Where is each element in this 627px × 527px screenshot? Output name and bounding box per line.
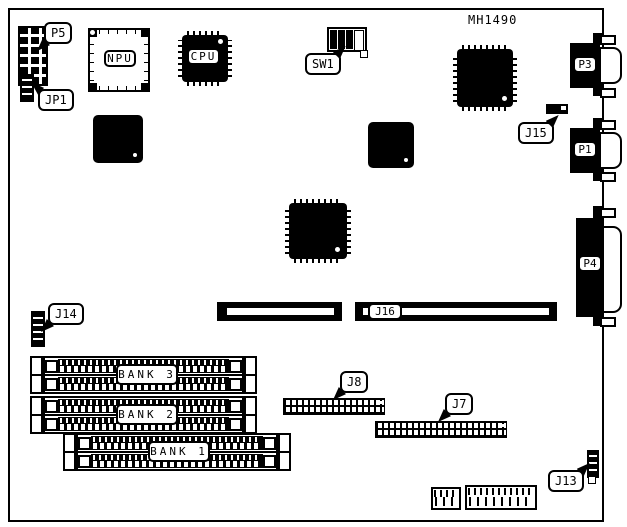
latch-bar bbox=[276, 435, 280, 451]
pin1-dot bbox=[335, 247, 340, 252]
bank1-label: BANK 1 bbox=[148, 441, 210, 462]
callout-jp1: JP1 bbox=[38, 89, 74, 111]
callout-p5-label: P5 bbox=[51, 26, 65, 40]
pin1-dot bbox=[90, 30, 95, 35]
chip bbox=[93, 115, 143, 163]
socket-corner bbox=[141, 83, 149, 91]
latch-bar bbox=[242, 416, 246, 432]
simm-latch bbox=[32, 416, 54, 432]
cpu-chip: CPU bbox=[182, 35, 228, 82]
j8-header bbox=[283, 398, 385, 415]
board-model-label: MH1490 bbox=[468, 13, 517, 27]
dip-position bbox=[354, 30, 364, 51]
pin1-dot bbox=[404, 158, 408, 162]
pin-fringe bbox=[347, 208, 351, 254]
simm-latch bbox=[233, 398, 255, 414]
p4-dsub-shell bbox=[602, 226, 622, 313]
latch-bar bbox=[242, 376, 246, 392]
pin-fringe bbox=[285, 208, 289, 254]
j13-jumper-cell bbox=[588, 476, 596, 484]
callout-sw1: SW1 bbox=[305, 53, 341, 75]
latch-hook bbox=[229, 400, 242, 413]
callout-j14-label: J14 bbox=[55, 307, 77, 321]
latch-hook bbox=[229, 418, 242, 431]
simm-latch bbox=[267, 453, 289, 469]
dip-tab bbox=[360, 50, 368, 58]
simm-latch bbox=[65, 453, 87, 469]
port-screw-tab bbox=[600, 208, 616, 218]
callout-j14: J14 bbox=[48, 303, 84, 325]
connector-pins bbox=[434, 490, 458, 497]
pin1-dot bbox=[502, 96, 507, 101]
p1-port-label: P1 bbox=[573, 141, 597, 158]
j7-header bbox=[375, 421, 507, 438]
pin1-dot bbox=[379, 401, 382, 404]
latch-bar bbox=[242, 398, 246, 414]
simm-latch bbox=[233, 416, 255, 432]
jumper-cell bbox=[561, 106, 566, 110]
qfp-chip bbox=[289, 203, 347, 259]
pin-fringe bbox=[453, 54, 457, 102]
callout-j13-label: J13 bbox=[555, 474, 577, 488]
port-screw-tab bbox=[600, 88, 616, 98]
pin-fringe bbox=[294, 259, 342, 263]
socket-corner bbox=[89, 83, 97, 91]
socket-corner bbox=[141, 29, 149, 37]
slot-stripe bbox=[227, 308, 334, 315]
latch-hook bbox=[263, 455, 276, 468]
pin-fringe bbox=[462, 107, 508, 111]
latch-hook bbox=[263, 437, 276, 450]
callout-j15-label: J15 bbox=[525, 126, 547, 140]
callout-j7: J7 bbox=[445, 393, 473, 415]
simm-latch bbox=[267, 435, 289, 451]
bank2-label: BANK 2 bbox=[116, 404, 178, 425]
npu-socket: NPU bbox=[88, 28, 150, 92]
expansion-slot bbox=[217, 302, 342, 321]
latch-hook bbox=[229, 360, 242, 373]
simm-latch bbox=[233, 376, 255, 392]
power-connector-long bbox=[465, 485, 537, 510]
connector-slots bbox=[469, 497, 533, 506]
port-screw-tab bbox=[600, 35, 616, 45]
latch-hook bbox=[78, 437, 91, 450]
latch-bar bbox=[276, 453, 280, 469]
p3-dsub-shell bbox=[599, 47, 622, 84]
qfp-chip bbox=[457, 49, 513, 107]
latch-hook bbox=[45, 400, 58, 413]
simm-latch bbox=[32, 398, 54, 414]
simm-latch bbox=[233, 358, 255, 374]
bank3-label: BANK 3 bbox=[116, 364, 178, 385]
simm-latch bbox=[65, 435, 87, 451]
cpu-chip-label: CPU bbox=[189, 50, 218, 63]
pin1-dot bbox=[133, 153, 137, 157]
pin-fringe bbox=[187, 82, 223, 86]
power-connector-small bbox=[431, 487, 461, 510]
pin-fringe bbox=[294, 199, 342, 203]
p3-port-label: P3 bbox=[573, 56, 597, 73]
pin1-dot bbox=[218, 39, 223, 44]
callout-j8: J8 bbox=[340, 371, 368, 393]
latch-hook bbox=[78, 455, 91, 468]
socket-corner bbox=[89, 29, 97, 37]
pin-fringe bbox=[228, 40, 232, 77]
jp1-jumper bbox=[20, 74, 34, 102]
latch-hook bbox=[229, 378, 242, 391]
callout-j8-label: J8 bbox=[347, 375, 361, 389]
dip-position bbox=[330, 30, 337, 49]
dip-position bbox=[346, 30, 353, 49]
callout-jp1-label: JP1 bbox=[45, 93, 67, 107]
p1-dsub-shell bbox=[599, 132, 622, 169]
callout-j15: J15 bbox=[518, 122, 554, 144]
pin-fringe bbox=[513, 54, 517, 102]
connector-slots bbox=[435, 497, 457, 506]
latch-hook bbox=[45, 360, 58, 373]
dip-position bbox=[338, 30, 345, 49]
npu-chip-label: NPU bbox=[104, 50, 136, 67]
callout-p5: P5 bbox=[44, 22, 72, 44]
callout-j7-label: J7 bbox=[452, 397, 466, 411]
port-screw-tab bbox=[600, 120, 616, 130]
latch-hook bbox=[45, 418, 58, 431]
port-screw-tab bbox=[600, 317, 616, 327]
connector-pins bbox=[468, 488, 534, 495]
sw1-dip-switch bbox=[327, 27, 367, 52]
callout-j13: J13 bbox=[548, 470, 584, 492]
pin-fringe bbox=[462, 45, 508, 49]
pin-fringe bbox=[187, 31, 223, 35]
motherboard-diagram: MH1490 P5 JP1 NPU CPU bbox=[0, 0, 627, 527]
simm-latch bbox=[32, 376, 54, 392]
port-screw-tab bbox=[600, 172, 616, 182]
pin-fringe bbox=[178, 40, 182, 77]
callout-sw1-label: SW1 bbox=[312, 57, 334, 71]
chip bbox=[368, 122, 414, 168]
simm-latch bbox=[32, 358, 54, 374]
latch-bar bbox=[242, 358, 246, 374]
latch-hook bbox=[45, 378, 58, 391]
j15-jumper bbox=[546, 104, 568, 114]
pin1-dot bbox=[501, 424, 504, 427]
callout-j16: J16 bbox=[368, 303, 402, 320]
p4-port-label: P4 bbox=[578, 255, 602, 272]
